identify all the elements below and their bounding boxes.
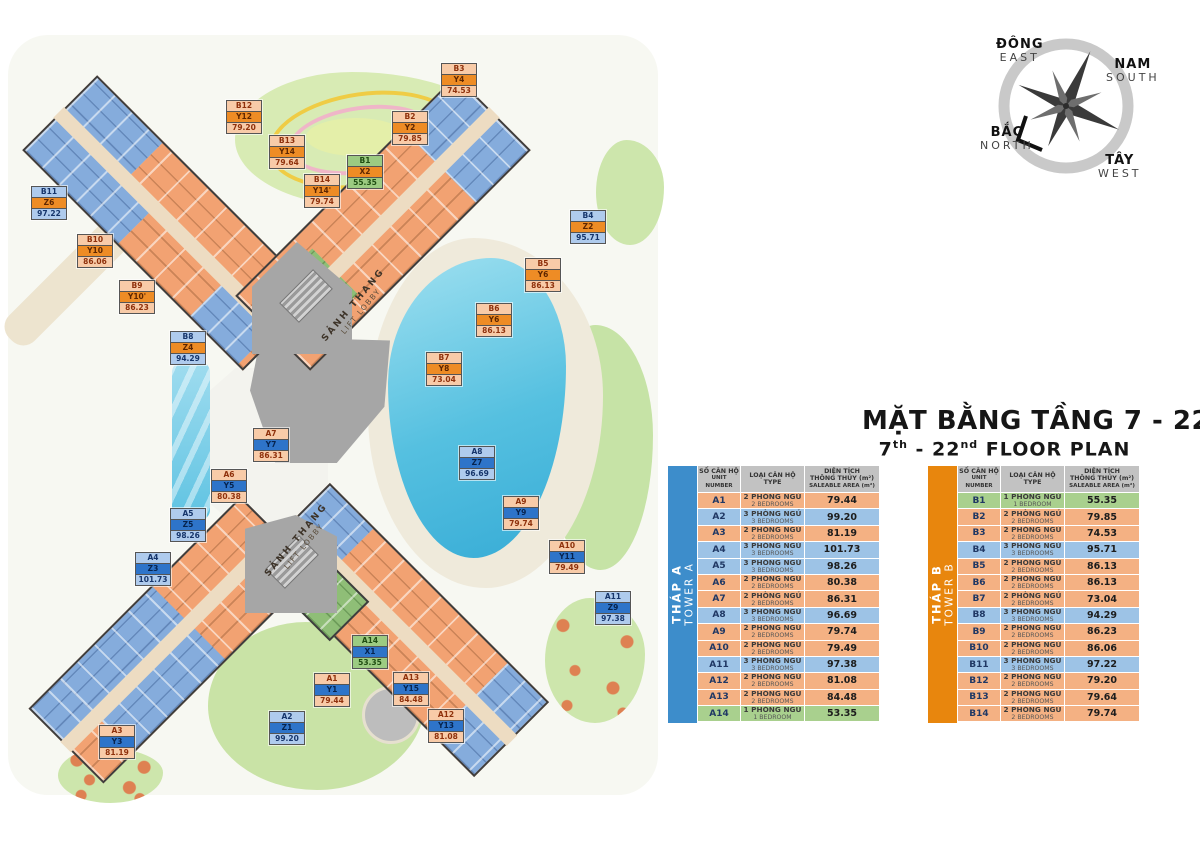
unit-number: A7 xyxy=(254,429,288,439)
cell-unit-type: 2 PHÒNG NGỦ2 BEDROOMS xyxy=(1001,624,1064,639)
compass-south-label: NAM SOUTH xyxy=(1106,58,1160,84)
header-area: DIỆN TÍCHTHÔNG THỦY (m²)SALEABLE AREA (m… xyxy=(1065,466,1139,492)
unit-type-code: Y9 xyxy=(504,507,538,518)
cell-unit-type: 2 PHÒNG NGỦ2 BEDROOMS xyxy=(741,591,804,606)
unit-number: A12 xyxy=(429,710,463,720)
table-row-B4: B43 PHÒNG NGỦ3 BEDROOMS95.71 xyxy=(958,542,1139,557)
type-vi: 2 PHÒNG NGỦ xyxy=(1004,575,1062,583)
table-row-A1: A12 PHÒNG NGỦ2 BEDROOMS79.44 xyxy=(698,493,879,508)
unit-label-B2: B2Y279.85 xyxy=(392,111,428,145)
tower-a-grid: SỐ CĂN HỘUNITNUMBERLOẠI CĂN HỘTYPEDIỆN T… xyxy=(698,466,879,723)
unit-type-code: Y12 xyxy=(227,111,261,122)
cell-unit-type: 2 PHÒNG NGỦ2 BEDROOMS xyxy=(741,641,804,656)
cell-unit-number: B8 xyxy=(958,608,1000,623)
unit-type-code: Y3 xyxy=(100,736,134,747)
unit-label-A4: A4Z3101.73 xyxy=(135,552,171,586)
type-vi: 2 PHÒNG NGỦ xyxy=(744,641,802,649)
cell-area: 79.44 xyxy=(805,493,879,508)
type-vi: 2 PHÒNG NGỦ xyxy=(744,673,802,681)
unit-type-code: Y11 xyxy=(550,551,584,562)
unit-area: 74.53 xyxy=(442,85,476,96)
cell-unit-number: B4 xyxy=(958,542,1000,557)
cell-unit-number: A3 xyxy=(698,526,740,541)
unit-type-code: Z3 xyxy=(136,563,170,574)
type-vi: 2 PHÒNG NGỦ xyxy=(1004,673,1062,681)
type-en: 2 BEDROOMS xyxy=(1011,681,1053,688)
cell-unit-type: 2 PHÒNG NGỦ2 BEDROOMS xyxy=(1001,591,1064,606)
type-vi: 2 PHÒNG NGỦ xyxy=(744,493,802,501)
cell-unit-type: 3 PHÒNG NGỦ3 BEDROOMS xyxy=(741,608,804,623)
table-row-B14: B142 PHÒNG NGỦ2 BEDROOMS79.74 xyxy=(958,706,1139,721)
cell-unit-number: B2 xyxy=(958,509,1000,524)
cell-unit-number: A13 xyxy=(698,690,740,705)
type-en: 1 BEDROOM xyxy=(753,714,791,721)
table-row-B13: B132 PHÒNG NGỦ2 BEDROOMS79.64 xyxy=(958,690,1139,705)
type-en: 3 BEDROOMS xyxy=(751,616,793,623)
cell-unit-type: 2 PHÒNG NGỦ2 BEDROOMS xyxy=(741,624,804,639)
unit-type-code: Y7 xyxy=(254,439,288,450)
type-en: 2 BEDROOMS xyxy=(1011,567,1053,574)
tower-b-side-bar: THÁP BTOWER B xyxy=(928,466,957,723)
tower-name-en: TOWER B xyxy=(943,563,955,627)
cell-area: 74.53 xyxy=(1065,526,1139,541)
cell-area: 94.29 xyxy=(1065,608,1139,623)
unit-area: 79.85 xyxy=(393,133,427,144)
unit-type-code: Z5 xyxy=(171,519,205,530)
unit-area: 95.71 xyxy=(571,232,605,243)
compass-east-label: ĐÔNG EAST xyxy=(996,38,1044,64)
cell-unit-type: 1 PHÒNG NGỦ1 BEDROOM xyxy=(1001,493,1064,508)
cell-unit-type: 2 PHÒNG NGỦ2 BEDROOMS xyxy=(1001,575,1064,590)
unit-type-code: Z2 xyxy=(571,221,605,232)
type-vi: 2 PHÒNG NGỦ xyxy=(744,575,802,583)
cell-area: 79.74 xyxy=(805,624,879,639)
unit-number: B6 xyxy=(477,304,511,314)
unit-number: A6 xyxy=(212,470,246,480)
cell-unit-type: 2 PHÒNG NGỦ2 BEDROOMS xyxy=(1001,690,1064,705)
cell-unit-type: 3 PHÒNG NGỦ3 BEDROOMS xyxy=(741,509,804,524)
unit-number: A1 xyxy=(315,674,349,684)
compass-north-label: BẮC NORTH xyxy=(980,126,1034,152)
tower-a-table: THÁP ATOWER ASỐ CĂN HỘUNITNUMBERLOẠI CĂN… xyxy=(668,466,879,723)
cell-unit-type: 2 PHÒNG NGỦ2 BEDROOMS xyxy=(1001,559,1064,574)
unit-type-code: Y13 xyxy=(429,720,463,731)
cell-area: 101.73 xyxy=(805,542,879,557)
table-row-B1: B11 PHÒNG NGỦ1 BEDROOM55.35 xyxy=(958,493,1139,508)
unit-area: 96.69 xyxy=(460,468,494,479)
unit-type-code: Y4 xyxy=(442,74,476,85)
header-unit-type: LOẠI CĂN HỘTYPE xyxy=(1001,466,1064,492)
table-row-B7: B72 PHÒNG NGỦ2 BEDROOMS73.04 xyxy=(958,591,1139,606)
unit-number: A8 xyxy=(460,447,494,457)
cell-unit-type: 3 PHÒNG NGỦ3 BEDROOMS xyxy=(741,559,804,574)
header-line: SALEABLE AREA (m²) xyxy=(809,483,875,491)
type-en: 2 BEDROOMS xyxy=(751,501,793,508)
cell-area: 84.48 xyxy=(805,690,879,705)
cell-unit-number: A10 xyxy=(698,641,740,656)
cell-area: 79.74 xyxy=(1065,706,1139,721)
cell-unit-type: 2 PHÒNG NGỦ2 BEDROOMS xyxy=(1001,641,1064,656)
unit-label-A14: A14X153.35 xyxy=(352,635,388,669)
unit-number: A13 xyxy=(394,673,428,683)
type-vi: 2 PHÒNG NGỦ xyxy=(1004,559,1062,567)
cell-area: 53.35 xyxy=(805,706,879,721)
unit-type-code: Y14' xyxy=(305,185,339,196)
unit-label-A12: A12Y1381.08 xyxy=(428,709,464,743)
cell-area: 55.35 xyxy=(1065,493,1139,508)
unit-type-code: Y5 xyxy=(212,480,246,491)
unit-number: B11 xyxy=(32,187,66,197)
cell-unit-type: 3 PHÒNG NGỦ3 BEDROOMS xyxy=(1001,608,1064,623)
header-line: TYPE xyxy=(764,479,782,487)
tower-name-en: TOWER A xyxy=(683,563,695,627)
unit-label-B6: B6Y686.13 xyxy=(476,303,512,337)
table-row-A9: A92 PHÒNG NGỦ2 BEDROOMS79.74 xyxy=(698,624,879,639)
compass-north-vi: BẮC xyxy=(980,126,1034,139)
page-title-vi: MẶT BẰNG TẦNG 7 - 22 xyxy=(862,406,1147,436)
cell-unit-type: 2 PHÒNG NGỦ2 BEDROOMS xyxy=(1001,706,1064,721)
unit-area: 79.20 xyxy=(227,122,261,133)
unit-type-code: Z6 xyxy=(32,197,66,208)
type-vi: 2 PHÒNG NGỦ xyxy=(744,624,802,632)
compass-east-en: EAST xyxy=(996,51,1044,64)
type-en: 3 BEDROOMS xyxy=(1011,616,1053,623)
type-en: 2 BEDROOMS xyxy=(751,600,793,607)
unit-area: 79.49 xyxy=(550,562,584,573)
compass-east-vi: ĐÔNG xyxy=(996,38,1044,51)
table-row-B8: B83 PHÒNG NGỦ3 BEDROOMS94.29 xyxy=(958,608,1139,623)
compass-west-en: WEST xyxy=(1098,167,1142,180)
cell-unit-type: 2 PHÒNG NGỦ2 BEDROOMS xyxy=(1001,509,1064,524)
cell-unit-number: B1 xyxy=(958,493,1000,508)
tower-b-grid: SỐ CĂN HỘUNITNUMBERLOẠI CĂN HỘTYPEDIỆN T… xyxy=(958,466,1139,723)
type-en: 2 BEDROOMS xyxy=(1011,632,1053,639)
header-line: SALEABLE AREA (m²) xyxy=(1069,483,1135,491)
cell-unit-type: 3 PHÒNG NGỦ3 BEDROOMS xyxy=(741,657,804,672)
unit-number: B10 xyxy=(78,235,112,245)
table-row-A8: A83 PHÒNG NGỦ3 BEDROOMS96.69 xyxy=(698,608,879,623)
unit-type-code: Y2 xyxy=(393,122,427,133)
unit-number: B12 xyxy=(227,101,261,111)
table-header-row: SỐ CĂN HỘUNITNUMBERLOẠI CĂN HỘTYPEDIỆN T… xyxy=(698,466,879,492)
unit-label-B5: B5Y686.13 xyxy=(525,258,561,292)
header-line: TYPE xyxy=(1024,479,1042,487)
unit-type-code: Y10 xyxy=(78,245,112,256)
compass-south-en: SOUTH xyxy=(1106,71,1160,84)
unit-area: 79.74 xyxy=(305,196,339,207)
type-en: 2 BEDROOMS xyxy=(1011,583,1053,590)
header-line: SỐ CĂN HỘ xyxy=(699,468,739,476)
table-row-A11: A113 PHÒNG NGỦ3 BEDROOMS97.38 xyxy=(698,657,879,672)
type-vi: 2 PHÒNG NGỦ xyxy=(1004,510,1062,518)
unit-label-A10: A10Y1179.49 xyxy=(549,540,585,574)
table-row-A5: A53 PHÒNG NGỦ3 BEDROOMS98.26 xyxy=(698,559,879,574)
cell-area: 73.04 xyxy=(1065,591,1139,606)
unit-number: B13 xyxy=(270,136,304,146)
table-row-B11: B113 PHÒNG NGỦ3 BEDROOMS97.22 xyxy=(958,657,1139,672)
unit-type-code: Z7 xyxy=(460,457,494,468)
cell-area: 79.85 xyxy=(1065,509,1139,524)
cell-unit-type: 3 PHÒNG NGỦ3 BEDROOMS xyxy=(741,542,804,557)
table-row-B5: B52 PHÒNG NGỦ2 BEDROOMS86.13 xyxy=(958,559,1139,574)
unit-number: A5 xyxy=(171,509,205,519)
header-unit-number: SỐ CĂN HỘUNITNUMBER xyxy=(958,466,1000,492)
unit-area: 79.64 xyxy=(270,157,304,168)
unit-area: 86.31 xyxy=(254,450,288,461)
cell-unit-number: A6 xyxy=(698,575,740,590)
unit-label-A6: A6Y580.38 xyxy=(211,469,247,503)
unit-area: 101.73 xyxy=(136,574,170,585)
cell-area: 96.69 xyxy=(805,608,879,623)
type-en: 3 BEDROOMS xyxy=(1011,550,1053,557)
cell-unit-type: 2 PHÒNG NGỦ2 BEDROOMS xyxy=(741,493,804,508)
table-row-A7: A72 PHÒNG NGỦ2 BEDROOMS86.31 xyxy=(698,591,879,606)
unit-label-A7: A7Y786.31 xyxy=(253,428,289,462)
lap-pool-left xyxy=(172,362,210,520)
header-line: UNIT xyxy=(971,475,986,483)
unit-area: 73.04 xyxy=(427,374,461,385)
tower-b-side-text: THÁP BTOWER B xyxy=(930,563,955,627)
unit-number: B7 xyxy=(427,353,461,363)
cell-area: 80.38 xyxy=(805,575,879,590)
cell-area: 97.22 xyxy=(1065,657,1139,672)
type-vi: 2 PHÒNG NGỦ xyxy=(1004,690,1062,698)
cell-unit-type: 3 PHÒNG NGỦ3 BEDROOMS xyxy=(1001,657,1064,672)
unit-label-A13: A13Y1584.48 xyxy=(393,672,429,706)
type-en: 2 BEDROOMS xyxy=(751,649,793,656)
unit-type-code: Z4 xyxy=(171,342,205,353)
cell-area: 86.13 xyxy=(1065,575,1139,590)
cell-unit-number: B14 xyxy=(958,706,1000,721)
header-line: UNIT xyxy=(711,475,726,483)
type-vi: 1 PHÒNG NGỦ xyxy=(1004,493,1062,501)
header-line: LOẠI CĂN HỘ xyxy=(749,472,795,480)
type-vi: 3 PHÒNG NGỦ xyxy=(744,542,802,550)
unit-type-code: Y1 xyxy=(315,684,349,695)
cell-unit-number: A14 xyxy=(698,706,740,721)
cell-unit-number: A11 xyxy=(698,657,740,672)
type-en: 3 BEDROOMS xyxy=(1011,665,1053,672)
cell-area: 81.19 xyxy=(805,526,879,541)
header-area: DIỆN TÍCHTHÔNG THỦY (m²)SALEABLE AREA (m… xyxy=(805,466,879,492)
unit-area: 98.26 xyxy=(171,530,205,541)
unit-label-B14: B14Y14'79.74 xyxy=(304,174,340,208)
cell-unit-number: A4 xyxy=(698,542,740,557)
cell-area: 86.31 xyxy=(805,591,879,606)
type-en: 2 BEDROOMS xyxy=(1011,649,1053,656)
type-vi: 3 PHÒNG NGỦ xyxy=(744,657,802,665)
cell-unit-type: 3 PHÒNG NGỦ3 BEDROOMS xyxy=(1001,542,1064,557)
header-line: THÔNG THỦY (m²) xyxy=(810,475,874,483)
compass-west-vi: TÂY xyxy=(1098,154,1142,167)
unit-number: A14 xyxy=(353,636,387,646)
table-row-B3: B32 PHÒNG NGỦ2 BEDROOMS74.53 xyxy=(958,526,1139,541)
table-row-A3: A32 PHÒNG NGỦ2 BEDROOMS81.19 xyxy=(698,526,879,541)
unit-number: B8 xyxy=(171,332,205,342)
cell-unit-type: 2 PHÒNG NGỦ2 BEDROOMS xyxy=(741,673,804,688)
unit-label-A1: A1Y179.44 xyxy=(314,673,350,707)
unit-label-B1: B1X255.35 xyxy=(347,155,383,189)
unit-type-code: Y14 xyxy=(270,146,304,157)
unit-label-B10: B10Y1086.06 xyxy=(77,234,113,268)
unit-label-B7: B7Y873.04 xyxy=(426,352,462,386)
unit-number: A10 xyxy=(550,541,584,551)
cell-unit-number: B6 xyxy=(958,575,1000,590)
unit-type-code: Y6 xyxy=(477,314,511,325)
cell-area: 97.38 xyxy=(805,657,879,672)
cell-unit-type: 2 PHÒNG NGỦ2 BEDROOMS xyxy=(741,575,804,590)
unit-area: 86.06 xyxy=(78,256,112,267)
unit-label-A8: A8Z796.69 xyxy=(459,446,495,480)
cell-unit-number: B13 xyxy=(958,690,1000,705)
table-row-B2: B22 PHÒNG NGỦ2 BEDROOMS79.85 xyxy=(958,509,1139,524)
type-en: 2 BEDROOMS xyxy=(1011,714,1053,721)
unit-type-code: Y8 xyxy=(427,363,461,374)
type-en: 3 BEDROOMS xyxy=(751,550,793,557)
unit-label-A11: A11Z997.38 xyxy=(595,591,631,625)
type-en: 2 BEDROOMS xyxy=(751,698,793,705)
table-row-B10: B102 PHÒNG NGỦ2 BEDROOMS86.06 xyxy=(958,641,1139,656)
unit-label-B4: B4Z295.71 xyxy=(570,210,606,244)
table-row-A4: A43 PHÒNG NGỦ3 BEDROOMS101.73 xyxy=(698,542,879,557)
unit-number: A11 xyxy=(596,592,630,602)
type-en: 2 BEDROOMS xyxy=(751,681,793,688)
cell-unit-number: B12 xyxy=(958,673,1000,688)
table-row-A10: A102 PHÒNG NGỦ2 BEDROOMS79.49 xyxy=(698,641,879,656)
unit-type-code: Z9 xyxy=(596,602,630,613)
cell-unit-number: A5 xyxy=(698,559,740,574)
compass-west-label: TÂY WEST xyxy=(1098,154,1142,180)
cell-unit-type: 2 PHÒNG NGỦ2 BEDROOMS xyxy=(1001,673,1064,688)
table-row-A12: A122 PHÒNG NGỦ2 BEDROOMS81.08 xyxy=(698,673,879,688)
unit-area: 84.48 xyxy=(394,694,428,705)
cell-unit-type: 2 PHÒNG NGỦ2 BEDROOMS xyxy=(741,690,804,705)
cell-unit-number: A8 xyxy=(698,608,740,623)
unit-area: 79.74 xyxy=(504,518,538,529)
tower-b-table: THÁP BTOWER BSỐ CĂN HỘUNITNUMBERLOẠI CĂN… xyxy=(928,466,1139,723)
type-vi: 2 PHÒNG NGỦ xyxy=(1004,641,1062,649)
cell-unit-number: A2 xyxy=(698,509,740,524)
unit-number: A4 xyxy=(136,553,170,563)
type-vi: 3 PHÒNG NGỦ xyxy=(744,559,802,567)
type-en: 2 BEDROOMS xyxy=(1011,698,1053,705)
header-line: SỐ CĂN HỘ xyxy=(959,468,999,476)
cell-unit-type: 2 PHÒNG NGỦ2 BEDROOMS xyxy=(1001,526,1064,541)
site-plan: SẢNH THANG LIFT LOBBY SẢNH THANG LIFT LO… xyxy=(0,0,665,848)
cell-area: 79.64 xyxy=(1065,690,1139,705)
type-en: 3 BEDROOMS xyxy=(751,518,793,525)
type-vi: 3 PHÒNG NGỦ xyxy=(1004,542,1062,550)
type-vi: 1 PHÒNG NGỦ xyxy=(744,706,802,714)
type-en: 2 BEDROOMS xyxy=(1011,518,1053,525)
type-vi: 2 PHÒNG NGỦ xyxy=(1004,624,1062,632)
unit-number: B3 xyxy=(442,64,476,74)
unit-number: B9 xyxy=(120,281,154,291)
unit-area: 55.35 xyxy=(348,177,382,188)
type-vi: 3 PHÒNG NGỦ xyxy=(744,608,802,616)
tower-name-vi: THÁP A xyxy=(670,563,683,627)
type-en: 2 BEDROOMS xyxy=(1011,600,1053,607)
type-en: 2 BEDROOMS xyxy=(751,534,793,541)
cell-unit-number: A1 xyxy=(698,493,740,508)
unit-type-code: Y10' xyxy=(120,291,154,302)
unit-number: A3 xyxy=(100,726,134,736)
unit-label-A3: A3Y381.19 xyxy=(99,725,135,759)
unit-type-code: X2 xyxy=(348,166,382,177)
unit-area: 81.08 xyxy=(429,731,463,742)
type-en: 3 BEDROOMS xyxy=(751,665,793,672)
cell-area: 86.06 xyxy=(1065,641,1139,656)
type-en: 2 BEDROOMS xyxy=(751,583,793,590)
cell-unit-type: 1 PHÒNG NGỦ1 BEDROOM xyxy=(741,706,804,721)
type-vi: 2 PHÒNG NGỦ xyxy=(744,690,802,698)
unit-label-B11: B11Z697.22 xyxy=(31,186,67,220)
compass-north-en: NORTH xyxy=(980,139,1034,152)
cell-unit-number: B7 xyxy=(958,591,1000,606)
unit-number: A9 xyxy=(504,497,538,507)
cell-area: 98.26 xyxy=(805,559,879,574)
compass-south-vi: NAM xyxy=(1106,58,1160,71)
table-row-A14: A141 PHÒNG NGỦ1 BEDROOM53.35 xyxy=(698,706,879,721)
cell-unit-number: B3 xyxy=(958,526,1000,541)
tower-a-side-bar: THÁP ATOWER A xyxy=(668,466,697,723)
unit-number: B2 xyxy=(393,112,427,122)
type-en: 3 BEDROOMS xyxy=(751,567,793,574)
unit-label-B12: B12Y1279.20 xyxy=(226,100,262,134)
unit-type-code: Z1 xyxy=(270,722,304,733)
type-vi: 2 PHÒNG NGỦ xyxy=(744,526,802,534)
cell-area: 86.23 xyxy=(1065,624,1139,639)
table-row-A2: A23 PHÒNG NGỦ3 BEDROOMS99.20 xyxy=(698,509,879,524)
table-row-B6: B62 PHÒNG NGỦ2 BEDROOMS86.13 xyxy=(958,575,1139,590)
type-en: 2 BEDROOMS xyxy=(751,632,793,639)
type-en: 1 BEDROOM xyxy=(1013,501,1051,508)
compass-rose: ĐÔNG EAST NAM SOUTH BẮC NORTH TÂY WEST xyxy=(958,18,1173,198)
cell-area: 81.08 xyxy=(805,673,879,688)
unit-area: 53.35 xyxy=(353,657,387,668)
unit-label-A2: A2Z199.20 xyxy=(269,711,305,745)
unit-label-B9: B9Y10'86.23 xyxy=(119,280,155,314)
unit-label-B3: B3Y474.53 xyxy=(441,63,477,97)
cell-area: 99.20 xyxy=(805,509,879,524)
unit-number: B14 xyxy=(305,175,339,185)
unit-area: 99.20 xyxy=(270,733,304,744)
floor-plan-sheet: SẢNH THANG LIFT LOBBY SẢNH THANG LIFT LO… xyxy=(0,0,1200,848)
table-header-row: SỐ CĂN HỘUNITNUMBERLOẠI CĂN HỘTYPEDIỆN T… xyxy=(958,466,1139,492)
unit-area: 94.29 xyxy=(171,353,205,364)
unit-area: 79.44 xyxy=(315,695,349,706)
type-vi: 2 PHÒNG NGỦ xyxy=(1004,526,1062,534)
unit-number: B4 xyxy=(571,211,605,221)
table-row-B9: B92 PHÒNG NGỦ2 BEDROOMS86.23 xyxy=(958,624,1139,639)
cell-unit-number: A7 xyxy=(698,591,740,606)
cell-unit-number: A12 xyxy=(698,673,740,688)
cell-area: 79.20 xyxy=(1065,673,1139,688)
type-vi: 3 PHÒNG NGỦ xyxy=(1004,657,1062,665)
unit-number: A2 xyxy=(270,712,304,722)
type-vi: 3 PHÒNG NGỦ xyxy=(1004,608,1062,616)
unit-area: 86.13 xyxy=(526,280,560,291)
type-vi: 3 PHÒNG NGỦ xyxy=(744,510,802,518)
unit-number: B5 xyxy=(526,259,560,269)
unit-label-B8: B8Z494.29 xyxy=(170,331,206,365)
cell-area: 95.71 xyxy=(1065,542,1139,557)
unit-label-A5: A5Z598.26 xyxy=(170,508,206,542)
cell-unit-type: 2 PHÒNG NGỦ2 BEDROOMS xyxy=(741,526,804,541)
unit-type-code: Y15 xyxy=(394,683,428,694)
unit-type-code: X1 xyxy=(353,646,387,657)
cell-unit-number: B9 xyxy=(958,624,1000,639)
